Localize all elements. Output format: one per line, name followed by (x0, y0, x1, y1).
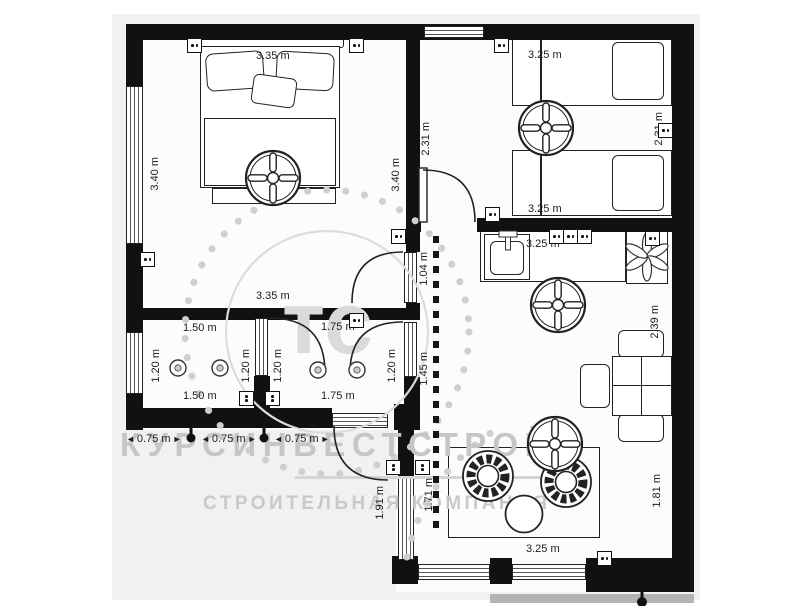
arrow-right-icon: ► (321, 435, 330, 444)
deck-edge (490, 594, 694, 603)
dim-corridor-lower: 1.45 m (418, 352, 430, 386)
dim-porch-3: ◄ 0.75 m ► (274, 433, 329, 445)
arrow-left-icon: ◄ (126, 435, 135, 444)
dim-w1-left: 1.20 m (150, 349, 162, 383)
dim-w2-bottom: 1.75 m (321, 390, 355, 402)
dim-living-bottom: 3.25 m (526, 543, 560, 555)
dim-w1-right: 1.20 m (240, 349, 252, 383)
switch (349, 313, 364, 328)
dim-twin-left: 2.31 m (420, 122, 432, 156)
dim-living-right: 1.81 m (651, 474, 663, 508)
socket (391, 229, 406, 244)
dim-master-right: 3.40 m (390, 158, 402, 192)
dim-w1-top: 1.50 m (183, 322, 217, 334)
socket (239, 391, 254, 406)
floor-plan: тс КУРСИНВЕСТСТРОЙ СТРОИТЕЛЬНАЯ КОМПАНИЯ (0, 0, 810, 606)
dim-porch-2: ◄ 0.75 m ► (201, 433, 256, 445)
socket (645, 231, 660, 246)
arrow-left-icon: ◄ (274, 435, 283, 444)
socket (597, 551, 612, 566)
socket (494, 38, 509, 53)
dim-kitchen-right: 2.39 m (649, 305, 661, 339)
socket (140, 252, 155, 267)
dim-w2-left: 1.20 m (272, 349, 284, 383)
dim-living-left: 1.71 m (423, 478, 435, 512)
socket (485, 207, 500, 222)
arrow-right-icon: ► (248, 435, 257, 444)
dim-master-bottom: 3.35 m (256, 290, 290, 302)
dim-twin-bottom: 3.25 m (528, 203, 562, 215)
dim-porch-1: ◄ 0.75 m ► (126, 433, 181, 445)
arrow-left-icon: ◄ (201, 435, 210, 444)
socket (563, 229, 578, 244)
socket (349, 38, 364, 53)
dim-w2-right: 1.20 m (386, 349, 398, 383)
arrow-right-icon: ► (173, 435, 182, 444)
socket (549, 229, 564, 244)
dim-porch-depth: 1.91 m (374, 486, 386, 520)
socket (577, 229, 592, 244)
dim-master-top: 3.35 m (256, 50, 290, 62)
watermark-company-name: КУРСИНВЕСТСТРОЙ (120, 426, 555, 464)
dim-w1-bottom: 1.50 m (183, 390, 217, 402)
dim-twin-top: 3.25 m (528, 49, 562, 61)
socket (415, 460, 430, 475)
socket (386, 460, 401, 475)
socket (187, 38, 202, 53)
watermark-divider (295, 476, 547, 479)
dim-corridor-upper: 1.04 m (418, 252, 430, 286)
watermark-logo (0, 0, 810, 606)
socket (658, 123, 673, 138)
dim-master-left: 3.40 m (149, 157, 161, 191)
socket (265, 391, 280, 406)
